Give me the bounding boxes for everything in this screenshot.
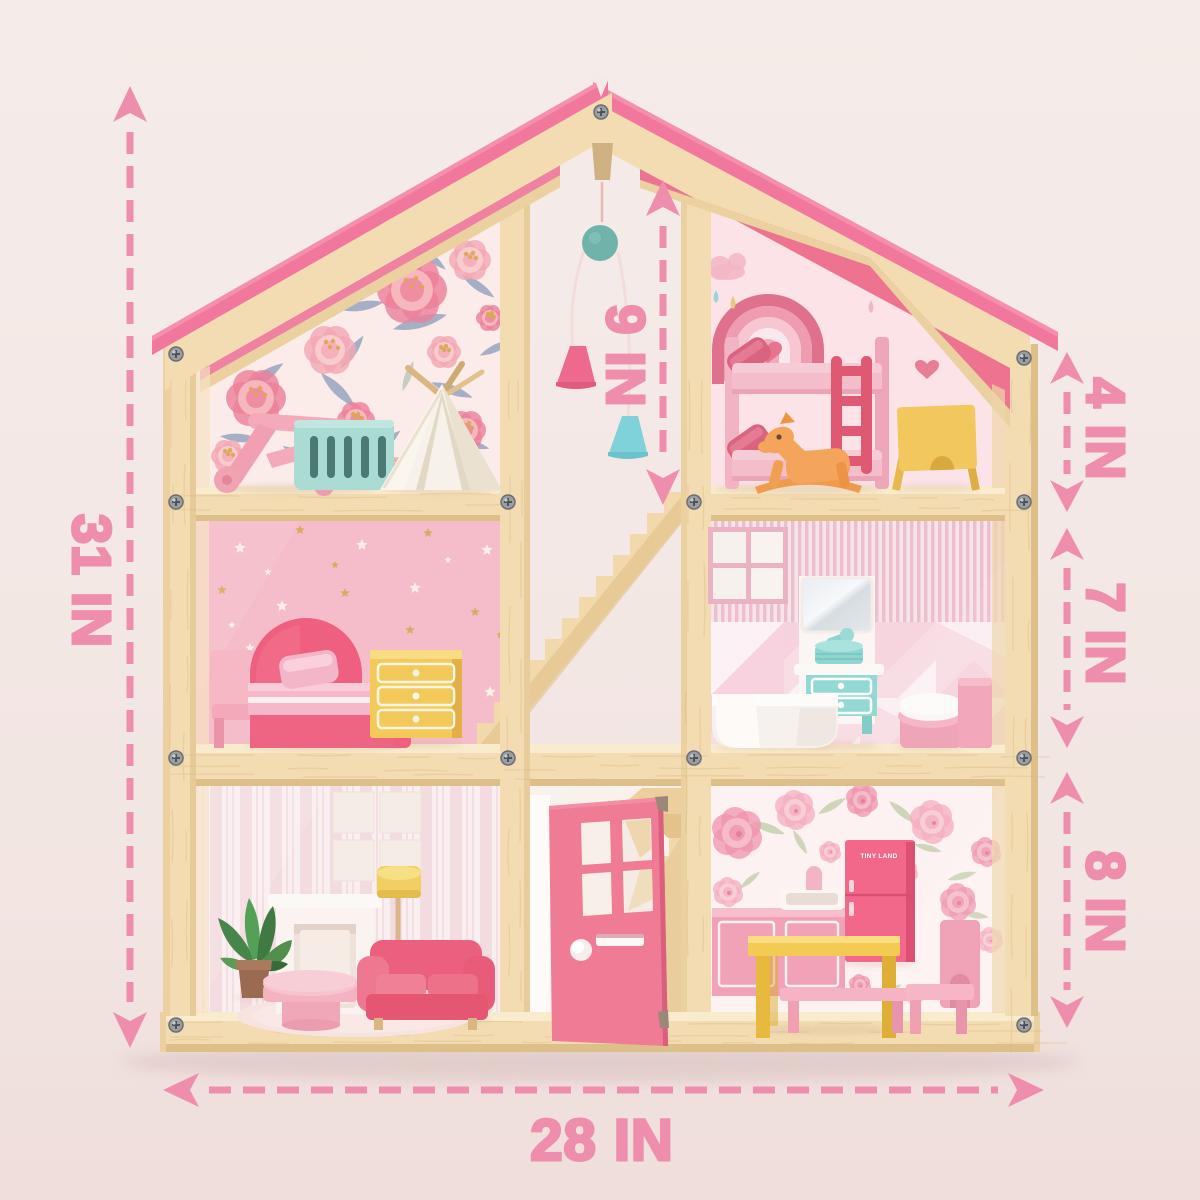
svg-text:7 IN: 7 IN: [1075, 582, 1135, 685]
svg-text:TINY LAND: TINY LAND: [860, 853, 897, 860]
svg-text:31 IN: 31 IN: [61, 514, 121, 648]
svg-text:8 IN: 8 IN: [1075, 850, 1135, 953]
svg-text:4 IN: 4 IN: [1075, 377, 1135, 480]
svg-text:9 IN: 9 IN: [595, 304, 655, 407]
svg-text:28 IN: 28 IN: [530, 1108, 674, 1173]
